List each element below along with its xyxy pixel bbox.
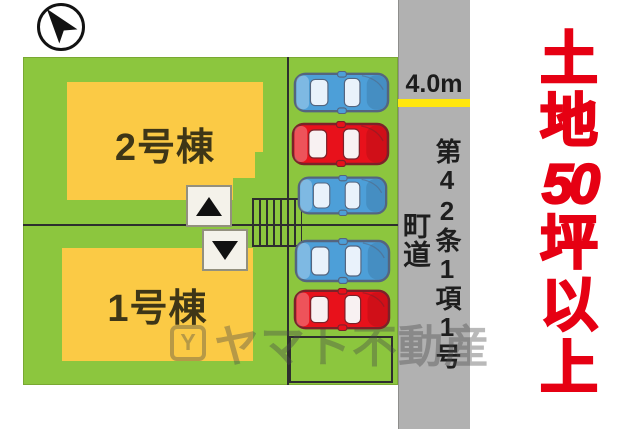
road-designation-label: 第42条1項1号 (434, 138, 460, 370)
headline-char: 以 (540, 275, 598, 337)
car-blue (293, 71, 390, 114)
building-1-label: 1号棟 (107, 277, 207, 332)
car-blue (294, 238, 391, 284)
car-blue (297, 175, 388, 216)
entrance-marker-down (202, 229, 248, 271)
road-type-label: 町道 (401, 211, 429, 269)
headline-char: 地 (540, 91, 598, 153)
headline-char: 坪 (540, 213, 598, 275)
headline-char: 土 (540, 29, 598, 91)
car-red (293, 288, 391, 331)
plot-plan: 2号棟 1号棟 (0, 0, 640, 429)
headline-land-size: 土 地 50 坪 以 上 (500, 0, 638, 429)
headline-char: 50 (542, 154, 596, 214)
north-arrow-icon (34, 0, 88, 54)
down-triangle-icon (212, 241, 238, 260)
road-width-marker (398, 99, 470, 107)
empty-parking-spot (289, 336, 393, 383)
headline-char: 上 (540, 338, 598, 400)
entrance-marker-up (186, 185, 232, 227)
road-width-label: 4.0m (398, 70, 470, 99)
up-triangle-icon (196, 197, 222, 216)
building-2-label: 2号棟 (87, 116, 243, 171)
car-red (291, 121, 390, 167)
